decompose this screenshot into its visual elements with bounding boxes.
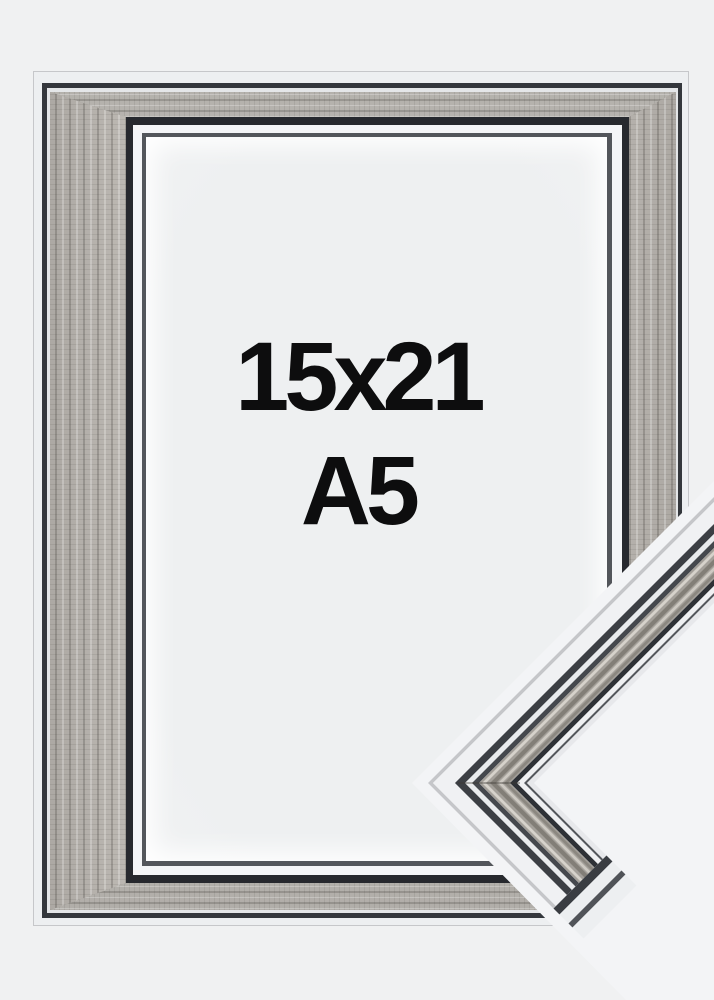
product-image-canvas: 15x21 A5 bbox=[0, 0, 714, 1000]
corner-detail-photo bbox=[0, 0, 714, 1000]
